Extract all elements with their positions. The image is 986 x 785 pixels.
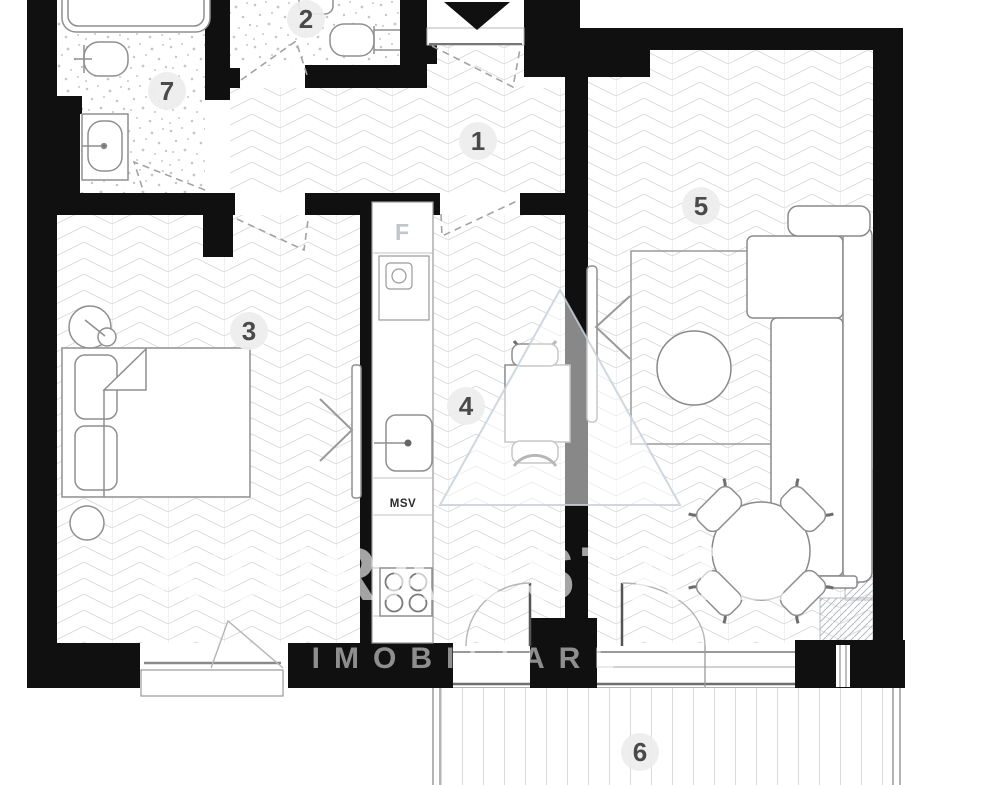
room-label-4: 4 xyxy=(447,387,485,425)
svg-text:1: 1 xyxy=(471,126,485,156)
room-label-2: 2 xyxy=(287,0,325,38)
sofa-chaise xyxy=(747,236,843,318)
room-label-5: 5 xyxy=(682,187,720,225)
wall xyxy=(220,68,240,88)
wall xyxy=(27,193,235,215)
bedside-plant-small xyxy=(98,328,116,346)
room-1-floor xyxy=(230,88,565,193)
room-label-7: 7 xyxy=(148,72,186,110)
wall xyxy=(55,112,80,193)
floor-plan-canvas: F MSV xyxy=(0,0,986,785)
wall xyxy=(565,28,903,50)
svg-text:5: 5 xyxy=(694,191,708,221)
wall xyxy=(55,96,82,114)
wc-toilet xyxy=(330,24,374,56)
entrance-sill xyxy=(427,28,524,45)
sofa-back xyxy=(843,226,872,582)
watermark-line2: IMOBILIARE xyxy=(312,642,629,675)
pillow xyxy=(75,426,117,490)
coffee-table xyxy=(657,331,731,405)
wall xyxy=(305,65,427,88)
stool xyxy=(70,506,104,540)
room-label-3: 3 xyxy=(230,312,268,350)
watermark-line1: AZURA ESTATE xyxy=(148,532,793,617)
bathtub-inner xyxy=(68,0,204,26)
wall xyxy=(27,0,57,645)
wall xyxy=(27,643,140,688)
oven-door xyxy=(386,263,412,289)
wall xyxy=(305,193,372,215)
floor-plan-page: F MSV xyxy=(0,0,986,785)
small-window-right xyxy=(836,645,850,687)
kitchen-drain xyxy=(405,440,412,447)
entrance xyxy=(427,2,524,45)
parapet-hatch xyxy=(820,598,873,643)
svg-text:4: 4 xyxy=(459,391,474,421)
svg-text:7: 7 xyxy=(160,76,174,106)
svg-text:2: 2 xyxy=(299,4,313,34)
window-sill xyxy=(141,670,283,696)
svg-text:3: 3 xyxy=(242,316,256,346)
room-6-floor xyxy=(430,687,903,785)
fridge-label: F xyxy=(395,219,409,245)
sofa-armrest xyxy=(788,206,870,236)
washer-label: MSV xyxy=(390,498,416,510)
svg-text:6: 6 xyxy=(633,737,647,767)
room-label-1: 1 xyxy=(459,122,497,160)
room-label-6: 6 xyxy=(621,733,659,771)
entrance-nook-floor xyxy=(427,44,524,88)
wall xyxy=(520,193,566,215)
sliding-door-panel xyxy=(352,365,361,498)
washbasin-drain xyxy=(102,144,107,149)
wall xyxy=(873,28,903,643)
entrance-arrow-icon xyxy=(444,2,510,30)
